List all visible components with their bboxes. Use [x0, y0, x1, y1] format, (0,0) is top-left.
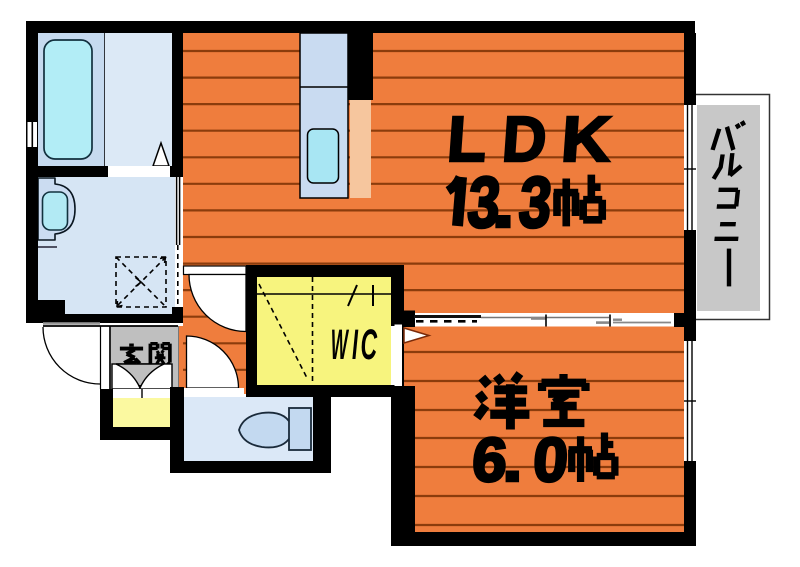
svg-text:K: K: [559, 104, 614, 175]
svg-text:W: W: [331, 320, 350, 368]
svg-text:.: .: [491, 162, 515, 243]
svg-text:0: 0: [531, 426, 570, 495]
svg-text:.: .: [502, 425, 523, 495]
svg-text:C: C: [361, 322, 378, 369]
svg-text:I: I: [352, 321, 359, 369]
